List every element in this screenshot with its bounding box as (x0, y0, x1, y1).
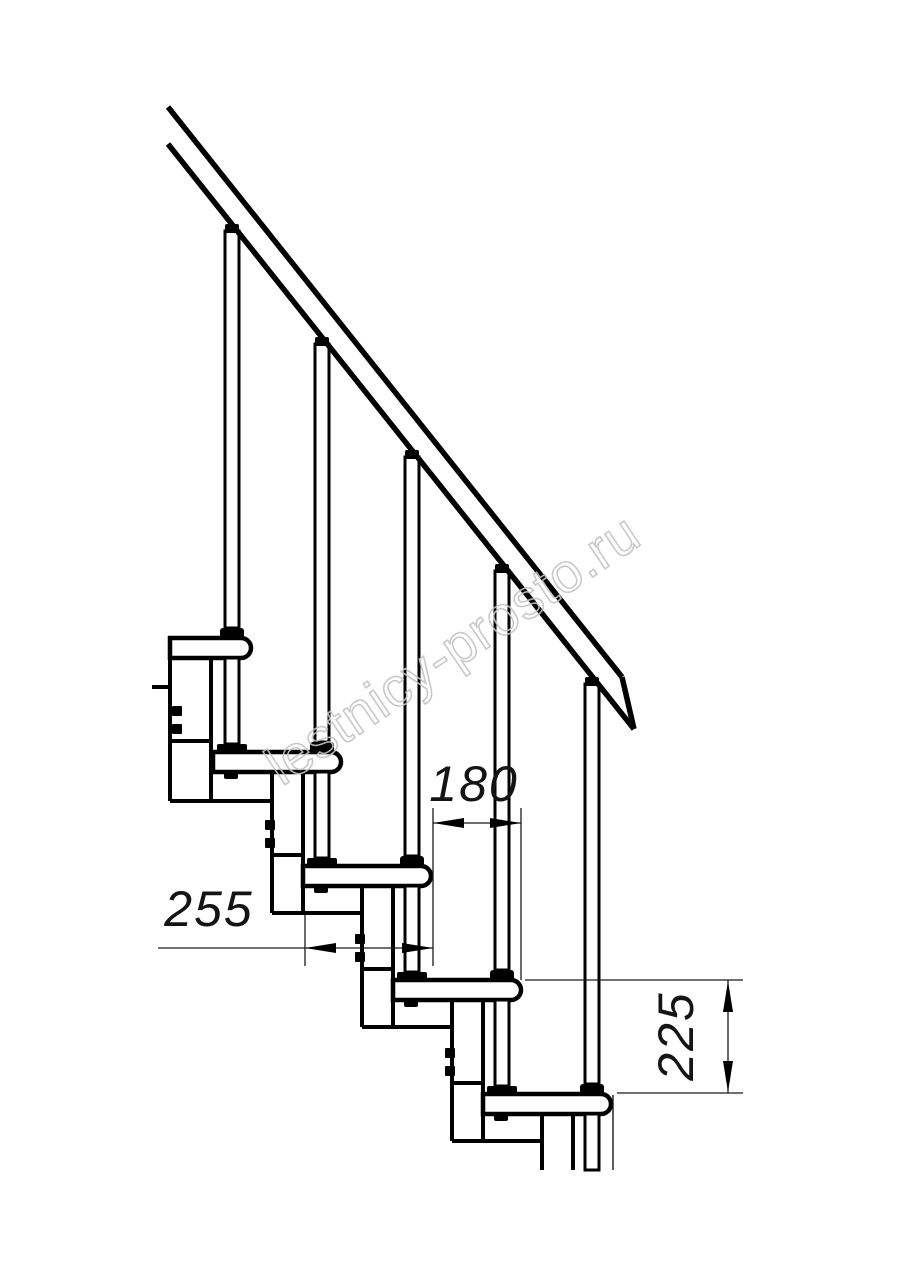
baluster-tube-lower (225, 658, 239, 744)
baluster-tube (225, 231, 239, 628)
bolt-icon (445, 1066, 455, 1076)
baluster-foot (217, 744, 247, 753)
baluster-tube (585, 684, 599, 1084)
dimension-label-180: 180 (429, 756, 518, 812)
baluster-2 (307, 337, 337, 867)
module-5-6-partial (542, 1114, 573, 1170)
bolt-icon (355, 952, 365, 962)
arrow-left-icon (433, 818, 464, 828)
baluster-foot (307, 858, 337, 867)
baluster-tube-lower (495, 1000, 509, 1086)
bolt-icon (404, 1000, 418, 1007)
bolt-icon (224, 772, 238, 779)
bolt-icon (494, 1114, 508, 1121)
tread-5 (483, 1094, 611, 1114)
bolt-icon (355, 934, 365, 944)
arrow-down-icon (723, 1061, 733, 1092)
baluster-foot (397, 972, 427, 981)
bolt-icon (265, 838, 275, 848)
arrow-up-icon (723, 981, 733, 1012)
baluster-tube-lower (585, 1114, 599, 1170)
baluster-foot (487, 1086, 517, 1095)
baluster-nose-collar (400, 856, 424, 867)
bolt-icon (172, 706, 182, 716)
baluster-tube-lower (315, 772, 329, 858)
tread-4 (393, 980, 521, 1000)
dimension-label-255: 255 (163, 881, 253, 937)
baluster-tube-lower (405, 886, 419, 972)
staircase-drawing: 180 255 225 lestnicy-prosto.ru (0, 0, 914, 1280)
bolt-icon (314, 886, 328, 893)
dimension-label-225: 225 (648, 991, 704, 1081)
tread-3 (303, 866, 431, 886)
baluster-1 (217, 224, 247, 753)
baluster-tube (315, 344, 329, 742)
bolt-icon (445, 1048, 455, 1058)
bolt-icon (172, 724, 182, 734)
baluster-nose-collar (490, 970, 514, 981)
baluster-nose-collar (220, 628, 244, 639)
bolt-icon (265, 820, 275, 830)
tread-1 (170, 638, 251, 658)
baluster-nose-collar (580, 1084, 604, 1095)
arrow-left-icon (305, 943, 336, 953)
drawing-page: 180 255 225 lestnicy-prosto.ru (0, 0, 914, 1280)
module-1-2 (170, 638, 272, 801)
